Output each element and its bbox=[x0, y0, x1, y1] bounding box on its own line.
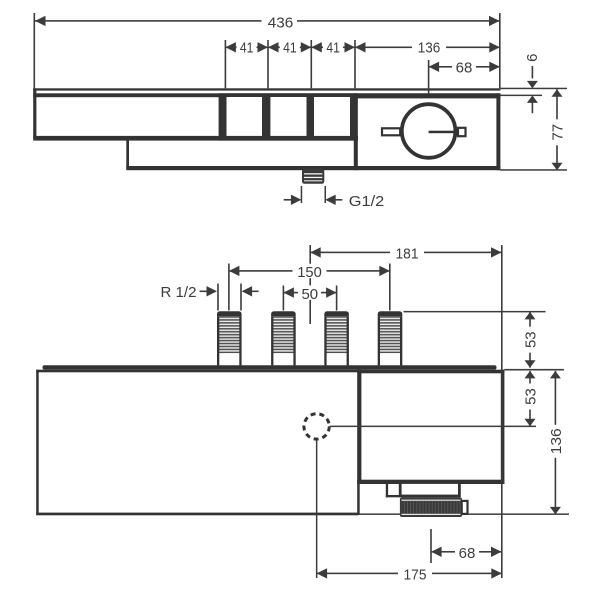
svg-text:181: 181 bbox=[396, 245, 419, 262]
svg-text:G1/2: G1/2 bbox=[349, 193, 385, 210]
svg-text:150: 150 bbox=[297, 264, 322, 281]
svg-text:50: 50 bbox=[301, 286, 318, 303]
svg-text:53: 53 bbox=[523, 331, 540, 348]
svg-text:136: 136 bbox=[548, 428, 565, 454]
svg-text:41: 41 bbox=[283, 40, 297, 57]
svg-text:53: 53 bbox=[523, 388, 540, 405]
svg-text:R 1/2: R 1/2 bbox=[161, 284, 197, 301]
svg-text:68: 68 bbox=[456, 60, 473, 77]
svg-text:175: 175 bbox=[404, 567, 427, 584]
svg-text:41: 41 bbox=[326, 40, 340, 57]
svg-text:136: 136 bbox=[418, 40, 441, 57]
svg-text:6: 6 bbox=[524, 54, 541, 62]
svg-text:436: 436 bbox=[268, 14, 294, 31]
svg-text:68: 68 bbox=[459, 545, 476, 562]
svg-text:77: 77 bbox=[550, 124, 567, 141]
svg-text:41: 41 bbox=[240, 40, 254, 57]
